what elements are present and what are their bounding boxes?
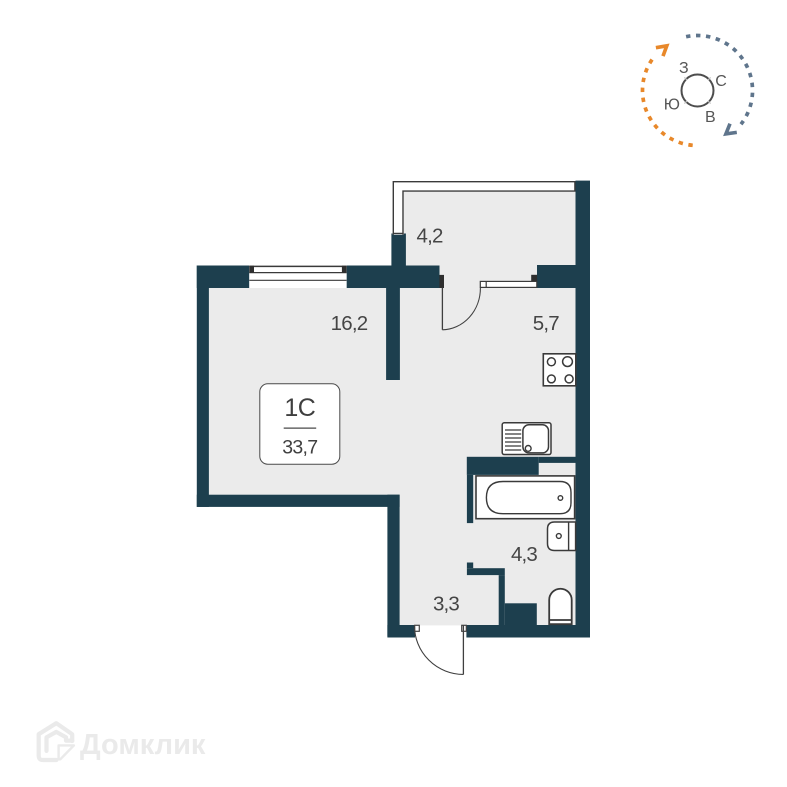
svg-text:Домклик: Домклик: [80, 729, 206, 761]
svg-text:С: С: [715, 73, 727, 90]
svg-text:Ю: Ю: [664, 97, 680, 114]
svg-text:3,3: 3,3: [433, 593, 459, 616]
svg-text:З: З: [679, 60, 689, 77]
svg-text:4,3: 4,3: [511, 543, 537, 566]
svg-text:1С: 1С: [284, 394, 315, 422]
svg-text:4,2: 4,2: [417, 224, 443, 247]
svg-text:В: В: [705, 109, 716, 126]
svg-text:33,7: 33,7: [282, 436, 317, 458]
svg-text:5,7: 5,7: [533, 312, 559, 335]
svg-text:16,2: 16,2: [331, 312, 368, 335]
